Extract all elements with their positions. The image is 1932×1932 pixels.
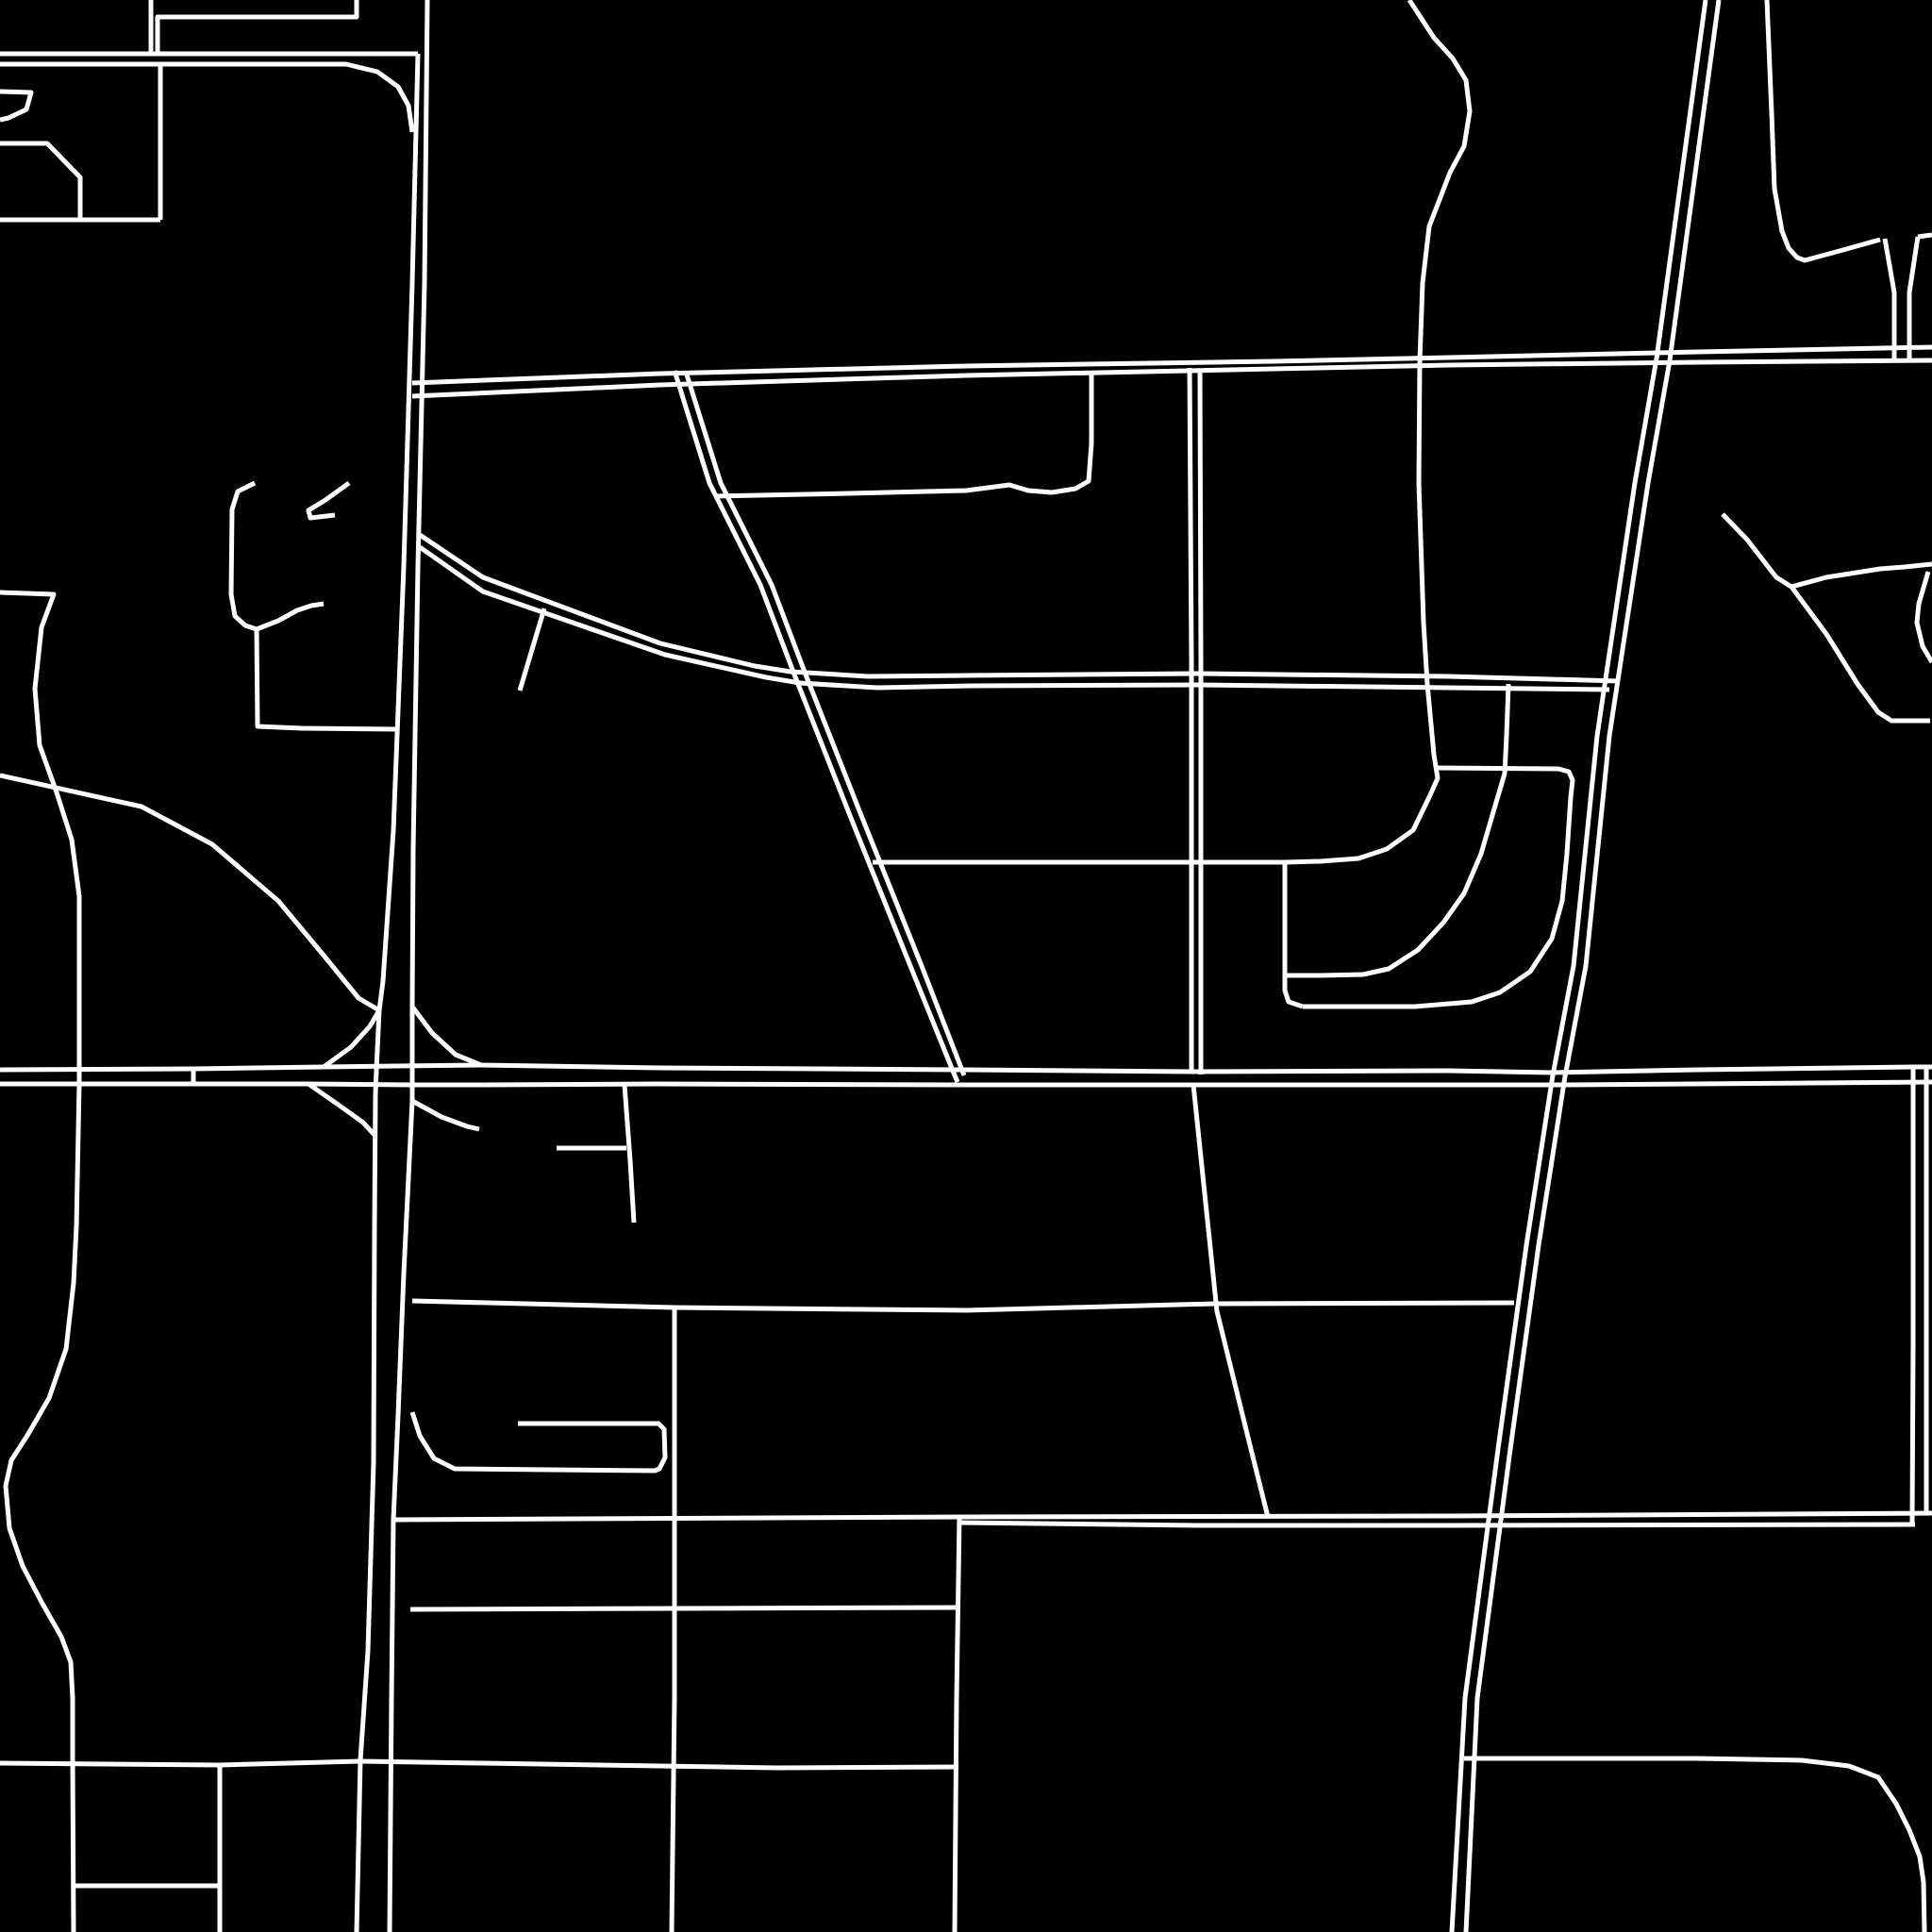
- street-map-canvas: [0, 0, 1932, 1932]
- road-funnel-top-east-stub: [1918, 235, 1932, 237]
- map-background: [0, 0, 1932, 1932]
- road-v1272-east-line: [1200, 373, 1201, 1074]
- road-v1261-west-line: [1190, 368, 1191, 1070]
- road-right-edge-v2028: [1912, 1067, 1913, 1523]
- road-h1706-collector: [410, 1607, 958, 1609]
- street-map-viewport[interactable]: [0, 0, 1932, 1932]
